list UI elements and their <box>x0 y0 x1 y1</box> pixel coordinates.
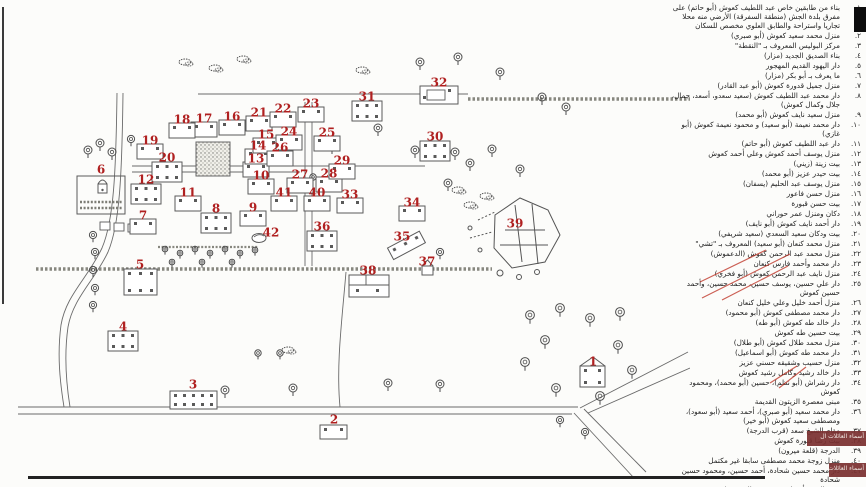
map-marker-2: 2 <box>330 413 338 427</box>
legend-item-text: منزل محمد كنعان (أبو سعيد) المعروف بـ "ت… <box>669 239 840 248</box>
legend-item-text: دار محمد نعيمة (أبو سعيد) و محمود نعيمة … <box>669 120 840 138</box>
legend-item: ٢.منزل محمد سعيد كعوش (أبو صبري) <box>669 31 861 40</box>
legend-item-text: دار محمد حسين شحادة، أحمد حسين، ومحمود ح… <box>669 466 840 484</box>
tree-icon <box>614 341 623 354</box>
marker-number: 20 <box>159 151 176 165</box>
building-shape-3 <box>170 391 217 409</box>
map-marker-35: 35 <box>394 230 411 244</box>
legend-item-text: منزل محمد سعيد كعوش (أبو صبري) <box>669 31 840 40</box>
legend-item-number: ٣٩. <box>843 446 861 455</box>
map-marker-3: 3 <box>189 378 197 392</box>
legend-item-number: ٢١. <box>843 239 861 248</box>
legend-item: ٣٠.منزل محمد طلال كعوش (أبو طلال) <box>669 338 861 347</box>
map-marker-26: 26 <box>272 141 289 155</box>
map-marker-36: 36 <box>314 220 331 234</box>
legend-item-number: ٣٥. <box>843 397 861 406</box>
watermark-strip: أسماء العائلات ال <box>807 431 866 446</box>
marker-number: 7 <box>139 209 147 223</box>
tree-icon <box>562 103 570 115</box>
map-marker-23: 23 <box>303 97 320 111</box>
legend-item: ١٢.منزل يوسف أحمد كعوش وعلي أحمد كعوش <box>669 149 861 158</box>
map-marker-31: 31 <box>359 90 376 104</box>
marker-number: 15 <box>258 128 275 142</box>
marker-number: 16 <box>224 110 241 124</box>
tree-icon <box>411 146 419 158</box>
legend-item: ٢٣.دار محمد وأحمد فارس كنعان <box>669 259 861 268</box>
marker-number: 6 <box>97 163 105 177</box>
speckled-courtyard <box>196 142 230 176</box>
map-marker-27: 27 <box>292 168 309 182</box>
map-marker-17: 17 <box>196 112 213 126</box>
map-marker-11: 11 <box>180 186 197 200</box>
legend-item-text: منزل يوسف أحمد كعوش وعلي أحمد كعوش <box>669 149 840 158</box>
map-marker-16: 16 <box>224 110 241 124</box>
marker-number: 3 <box>189 378 197 392</box>
tree-icon <box>628 366 637 379</box>
map-marker-30: 30 <box>427 130 444 144</box>
legend-item-number: ١٦. <box>843 189 861 198</box>
legend-item-number: ٢٢. <box>843 249 861 258</box>
legend-item: ١٨.دكان ومنزل عمر حوراني <box>669 209 861 218</box>
legend-item-number: ١٩. <box>843 219 861 228</box>
bush-icon <box>237 56 251 63</box>
legend-item-text: منزل حسن فاعور <box>669 189 840 198</box>
bush-icon <box>452 187 466 194</box>
tree-icon <box>451 148 459 160</box>
marker-number: 33 <box>342 188 359 202</box>
legend-item-text: ما يعرف بـ أبو بكر (مزار) <box>669 71 840 80</box>
tree-icon <box>89 301 96 312</box>
legend-item: ٨.دار محمد عبد اللطيف كعوش (سعيد سعدو، أ… <box>669 91 861 109</box>
watermark-text: أسماء العائلات ال <box>829 465 864 472</box>
marker-number: 4 <box>119 320 127 334</box>
tree-icon <box>89 266 96 277</box>
tree-icon <box>436 248 443 259</box>
legend-item-number: ١٤. <box>843 169 861 178</box>
map-marker-28: 28 <box>321 167 338 181</box>
marker-number: 30 <box>427 130 444 144</box>
building-shape-36 <box>307 231 337 251</box>
bush-icon <box>282 347 296 354</box>
map-marker-40: 40 <box>309 186 326 200</box>
tree-icon <box>237 250 243 258</box>
legend-item-number: ٣٦. <box>843 407 861 425</box>
redaction-box <box>854 7 866 32</box>
marker-number: 27 <box>292 168 309 182</box>
tree-icon <box>526 311 535 324</box>
tree-icon <box>89 231 96 242</box>
map-marker-21: 21 <box>251 106 268 120</box>
marker-number: 41 <box>276 186 293 200</box>
legend-item-number: ٢٠. <box>843 229 861 238</box>
legend-item: ١٥.منزل يوسف عبد الحليم (يسفان) <box>669 179 861 188</box>
legend-item-text: منزل يوسف عبد الحليم (يسفان) <box>669 179 840 188</box>
legend-item-number: ٢٩. <box>843 328 861 337</box>
marker-number: 21 <box>251 106 268 120</box>
legend-item-text: منزل أحمد خليل وعلي خليل كنعان <box>669 298 840 307</box>
map-marker-32: 32 <box>431 76 448 90</box>
tree-icon <box>84 146 92 158</box>
building-shape-8 <box>201 213 231 233</box>
tree-icon <box>177 250 183 258</box>
legend-item-text: مركز البوليس المعروف بـ "النقطة" <box>669 41 840 50</box>
legend-item-number: ٣٤. <box>843 378 861 396</box>
map-marker-8: 8 <box>212 202 220 216</box>
bush-icon <box>179 59 193 66</box>
marker-number: 31 <box>359 90 376 104</box>
legend-item-text: منزل زوجة محمد مصطفى سابقا غير مكتمل <box>669 456 840 465</box>
legend-item: ٣٣.دار خالد رشيد وكامل رشيد كعوش <box>669 368 861 377</box>
legend-item-number: ٢٤. <box>843 269 861 278</box>
legend-item-text: مبنى معصرة الزيتون القديمة <box>669 397 840 406</box>
map-marker-12: 12 <box>138 173 155 187</box>
marker-number: 11 <box>180 186 197 200</box>
marker-number: 28 <box>321 167 338 181</box>
tree-icon <box>552 384 561 397</box>
map-marker-34: 34 <box>404 196 421 210</box>
legend-item-text: دار خالد طه كعوش (أبو طه) <box>669 318 840 327</box>
legend-item-text: الدرجة (قلعة ميرون) <box>669 446 840 455</box>
legend-item-text: دار رشراش (أبو نظم)، حسين (أبو محمد)، وم… <box>669 378 840 396</box>
legend-item-number: ٧. <box>843 81 861 90</box>
legend-item: ٣٤.دار رشراش (أبو نظم)، حسين (أبو محمد)،… <box>669 378 861 396</box>
legend-item-text: دكان ومنزل عمر حوراني <box>669 209 840 218</box>
legend-item-number: ١٠. <box>843 120 861 138</box>
watermark-strip: أسماء العائلات ال <box>829 463 866 477</box>
tree-icon <box>516 165 524 177</box>
legend-item-text: بيت ودكان سعيد السعدي (سعيد شريفي) <box>669 229 840 238</box>
legend-item-number: ١٣. <box>843 159 861 168</box>
legend-item: ٢٠.بيت ودكان سعيد السعدي (سعيد شريفي) <box>669 229 861 238</box>
legend-item: ٧.منزل جميل قدورة كعوش (أبو عبد القادر) <box>669 81 861 90</box>
village-map: 1234567891011121314151617181920212223242… <box>0 0 690 487</box>
building-shape-31 <box>352 101 382 121</box>
legend-item-text: منزل محمد عبد الرحمن كعوش (الدعموش) <box>669 249 840 258</box>
legend-item-number: ٣٠. <box>843 338 861 347</box>
legend-item: ٢٢.منزل محمد عبد الرحمن كعوش (الدعموش) <box>669 249 861 258</box>
marker-number: 9 <box>249 201 257 215</box>
legend-item-text: منزل حسيب وشقيقه حسني عزيز <box>669 358 840 367</box>
map-marker-38: 38 <box>360 264 377 278</box>
tree-icon <box>454 53 462 65</box>
legend-item: ١٣.بيت زينة (زيني) <box>669 159 861 168</box>
marker-number: 39 <box>507 217 524 231</box>
legend-item: ٢١.منزل محمد كنعان (أبو سعيد) المعروف بـ… <box>669 239 861 248</box>
map-marker-5: 5 <box>136 258 144 272</box>
legend-item-text: دار محمد عبد اللطيف كعوش (سعيد سعدو، أسع… <box>669 91 840 109</box>
legend-item-text: منزل محمد طلال كعوش (أبو طلال) <box>669 338 840 347</box>
legend-item: ١٦.منزل حسن فاعور <box>669 189 861 198</box>
legend-item: ٢٩.بيت حسين طه كعوش <box>669 328 861 337</box>
legend-item-text: بيت زينة (زيني) <box>669 159 840 168</box>
map-marker-13: 13 <box>248 152 265 166</box>
legend-item: ٣١.دار محمد طه كعوش (أبو اسماعيل) <box>669 348 861 357</box>
tree-icon <box>436 380 444 392</box>
marker-number: 35 <box>394 230 411 244</box>
legend-item-text: بيت حيدر عزيز (أبو محمد) <box>669 169 840 178</box>
map-marker-33: 33 <box>342 188 359 202</box>
marker-number: 12 <box>138 173 155 187</box>
map-marker-24: 24 <box>281 125 298 139</box>
legend-item-text: بيت حسن قبورة <box>669 199 840 208</box>
tree-icon <box>416 58 424 70</box>
legend-item-number: ١٥. <box>843 179 861 188</box>
legend-item-text: منزل جميل قدورة كعوش (أبو عبد القادر) <box>669 81 840 90</box>
legend-item: ٣.مركز البوليس المعروف بـ "النقطة" <box>669 41 861 50</box>
tree-icon <box>586 314 595 327</box>
legend-item-number: ٣١. <box>843 348 861 357</box>
map-marker-10: 10 <box>253 169 270 183</box>
map-marker-42: 42 <box>263 226 280 240</box>
legend-item-text: دار خالد رشيد وكامل رشيد كعوش <box>669 368 840 377</box>
legend-item: ٣٥.مبنى معصرة الزيتون القديمة <box>669 397 861 406</box>
marker-number: 8 <box>212 202 220 216</box>
legend-item-text: بناء من طابقين خاص عبد اللطيف كعوش (أبو … <box>669 3 840 30</box>
legend-list: ١.بناء من طابقين خاص عبد اللطيف كعوش (أب… <box>669 3 861 487</box>
tree-icon <box>374 124 382 136</box>
scanned-village-map-page: 1234567891011121314151617181920212223242… <box>0 0 866 487</box>
legend-item-number: ٤. <box>843 51 861 60</box>
tree-icon <box>444 179 452 191</box>
marker-number: 13 <box>248 152 265 166</box>
legend-item-text: دار محمد وأحمد فارس كنعان <box>669 259 840 268</box>
legend-item-number: ٢٦. <box>843 298 861 307</box>
tree-icon <box>616 308 625 321</box>
marker-number: 37 <box>419 255 436 269</box>
road-path <box>66 93 123 407</box>
legend-item: ١٤.بيت حيدر عزيز (أبو محمد) <box>669 169 861 178</box>
building-shape-20 <box>152 162 182 182</box>
tree-icon <box>91 248 98 259</box>
map-marker-20: 20 <box>159 151 176 165</box>
marker-number: 22 <box>275 102 292 116</box>
legend-item-number: ٥. <box>843 61 861 70</box>
marker-number: 10 <box>253 169 270 183</box>
legend-item: ٣٦.دار محمد سعيد (أبو صبري)، أحمد سعيد (… <box>669 407 861 425</box>
legend-item: ٥.دار اليهود القديم المهجور <box>669 61 861 70</box>
bush-icon <box>209 65 223 72</box>
road-path <box>574 413 634 478</box>
page-left-border <box>2 7 4 304</box>
tree-icon <box>96 139 104 151</box>
marker-number: 26 <box>272 141 289 155</box>
tree-icon <box>252 247 258 255</box>
page-bottom-border <box>28 476 765 479</box>
legend-item: ٢٨.دار خالد طه كعوش (أبو طه) <box>669 318 861 327</box>
map-marker-37: 37 <box>419 255 436 269</box>
bush-icon <box>480 193 494 200</box>
building-shape-38 <box>349 275 389 297</box>
legend-item: ٢٦.منزل أحمد خليل وعلي خليل كنعان <box>669 298 861 307</box>
legend-item-number: ٨. <box>843 91 861 109</box>
map-marker-7: 7 <box>139 209 147 223</box>
bush-icon <box>356 67 370 74</box>
legend-item-number: ١٨. <box>843 209 861 218</box>
marker-number: 34 <box>404 196 421 210</box>
map-marker-6: 6 <box>97 163 105 177</box>
tree-icon <box>199 259 205 267</box>
legend-panel: ١.بناء من طابقين خاص عبد اللطيف كعوش (أب… <box>669 3 861 487</box>
tree-icon <box>496 68 504 80</box>
legend-item-number: ٩. <box>843 110 861 119</box>
tree-icon <box>192 246 198 254</box>
tree-icon <box>556 304 565 317</box>
tree-icon <box>541 336 550 349</box>
marker-number: 2 <box>330 413 338 427</box>
map-marker-41: 41 <box>276 186 293 200</box>
tree-icon <box>488 145 496 157</box>
map-marker-1: 1 <box>589 355 597 369</box>
tree-icon <box>556 416 563 427</box>
map-marker-19: 19 <box>142 134 159 148</box>
legend-item: ٣٢.منزل حسيب وشقيقه حسني عزيز <box>669 358 861 367</box>
legend-item-number: ١١. <box>843 139 861 148</box>
marker-number: 42 <box>263 226 280 240</box>
tree-icon <box>222 246 228 254</box>
legend-item-number: ٢٧. <box>843 308 861 317</box>
building-shape-4 <box>108 331 138 351</box>
legend-item-number: ٢٥. <box>843 279 861 297</box>
marker-number: 36 <box>314 220 331 234</box>
building-shape-5 <box>124 269 157 295</box>
map-marker-39: 39 <box>507 217 524 231</box>
marker-number: 23 <box>303 97 320 111</box>
marker-number: 25 <box>319 126 336 140</box>
legend-item: ٦.ما يعرف بـ أبو بكر (مزار) <box>669 71 861 80</box>
tree-icon <box>596 392 605 405</box>
legend-item: ٤.بناء الصديق الجديد (مزار) <box>669 51 861 60</box>
legend-item: ٣٩.الدرجة (قلعة ميرون) <box>669 446 861 455</box>
marker-number: 5 <box>136 258 144 272</box>
tree-icon <box>521 358 530 371</box>
marker-number: 32 <box>431 76 448 90</box>
legend-item: ١٧.بيت حسن قبورة <box>669 199 861 208</box>
tree-icon <box>255 350 261 360</box>
legend-item-number: ٣. <box>843 41 861 50</box>
legend-item-text: دار اليهود القديم المهجور <box>669 61 840 70</box>
legend-item-text: منزل نايف عبد الرحمن كعوش (أبو فخري) <box>669 269 840 278</box>
building-shape-6 <box>77 176 125 214</box>
watermark-text: أسماء العائلات ال <box>820 433 864 440</box>
tree-icon <box>384 379 392 391</box>
building-shape-2 <box>320 425 347 439</box>
legend-item-number: ١٢. <box>843 149 861 158</box>
legend-item-text: دار علي حسين، يوسف حسين، محمد حسين، وأحم… <box>669 279 840 297</box>
map-marker-22: 22 <box>275 102 292 116</box>
marker-number: 40 <box>309 186 326 200</box>
map-marker-9: 9 <box>249 201 257 215</box>
legend-item-text: بيت حسين طه كعوش <box>669 328 840 337</box>
tree-icon <box>162 246 168 254</box>
legend-item-number: ١٧. <box>843 199 861 208</box>
legend-item-number: ٢٣. <box>843 259 861 268</box>
legend-item-text: دار أحمد نايف كعوش (أبو نايف) <box>669 219 840 228</box>
legend-item: ٢٧.دار محمد مصطفى كعوش (أبو محمود) <box>669 308 861 317</box>
legend-item-text: دار عبد اللطيف كعوش (أبو حاتم) <box>669 139 840 148</box>
legend-item-text: دار محمد طه كعوش (أبو اسماعيل) <box>669 348 840 357</box>
tree-icon <box>221 386 229 398</box>
map-marker-29: 29 <box>334 154 351 168</box>
road-path <box>59 93 117 407</box>
bush-icon <box>464 202 478 209</box>
legend-item: ٢٥.دار علي حسين، يوسف حسين، محمد حسين، و… <box>669 279 861 297</box>
legend-item: ١.بناء من طابقين خاص عبد اللطيف كعوش (أب… <box>669 3 861 30</box>
tree-icon <box>466 159 474 171</box>
tree-icon <box>207 250 213 258</box>
map-marker-4: 4 <box>119 320 127 334</box>
tree-icon <box>127 135 134 146</box>
tree-icon <box>169 259 175 267</box>
legend-item-text: منزل سعيد نايف كعوش (أبو محمد) <box>669 110 840 119</box>
marker-number: 29 <box>334 154 351 168</box>
legend-item: ٩.منزل سعيد نايف كعوش (أبو محمد) <box>669 110 861 119</box>
legend-item-text: دار محمد مصطفى كعوش (أبو محمود) <box>669 308 840 317</box>
tree-icon <box>289 384 297 396</box>
map-marker-18: 18 <box>174 113 191 127</box>
legend-item: ١١.دار عبد اللطيف كعوش (أبو حاتم) <box>669 139 861 148</box>
legend-item-number: ٣٢. <box>843 358 861 367</box>
legend-item: ٢٤.منزل نايف عبد الرحمن كعوش (أبو فخري) <box>669 269 861 278</box>
building-shape-12 <box>131 184 161 204</box>
legend-item-number: ٢. <box>843 31 861 40</box>
building-shape-30 <box>420 141 450 161</box>
legend-item-text: دار محمد سعيد (أبو صبري)، أحمد سعيد (أبو… <box>669 407 840 425</box>
map-marker-15: 15 <box>258 128 275 142</box>
marker-number: 18 <box>174 113 191 127</box>
legend-item: ١٠.دار محمد نعيمة (أبو سعيد) و محمود نعي… <box>669 120 861 138</box>
tree-icon <box>91 284 98 295</box>
legend-item-number: ٢٨. <box>843 318 861 327</box>
road-path <box>584 409 646 472</box>
tree-icon <box>581 428 588 439</box>
tree-icon <box>108 148 116 160</box>
marker-number: 24 <box>281 125 298 139</box>
map-marker-25: 25 <box>319 126 336 140</box>
street-path <box>339 272 346 407</box>
legend-item: ١٩.دار أحمد نايف كعوش (أبو نايف) <box>669 219 861 228</box>
marker-number: 19 <box>142 134 159 148</box>
legend-item-number: ٦. <box>843 71 861 80</box>
tree-icon <box>229 259 235 267</box>
legend-item-number: ٣٣. <box>843 368 861 377</box>
marker-number: 1 <box>589 355 597 369</box>
marker-number: 17 <box>196 112 213 126</box>
legend-item-text: بناء الصديق الجديد (مزار) <box>669 51 840 60</box>
marker-number: 38 <box>360 264 377 278</box>
